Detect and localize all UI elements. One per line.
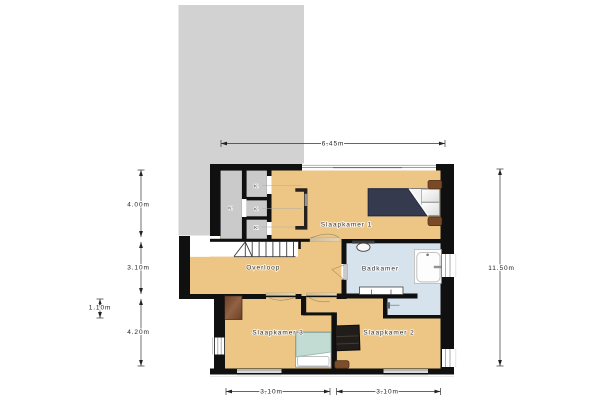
- svg-text:11.50m: 11.50m: [488, 265, 515, 272]
- svg-text:1.10m: 1.10m: [89, 305, 112, 312]
- svg-text:4.00m: 4.00m: [127, 202, 150, 209]
- svg-text:6.45m: 6.45m: [322, 141, 345, 148]
- svg-text:K.: K.: [254, 225, 259, 231]
- svg-text:4.20m: 4.20m: [127, 329, 150, 336]
- svg-text:3.10m: 3.10m: [127, 265, 150, 272]
- svg-text:3.10m: 3.10m: [260, 389, 283, 396]
- svg-text:Slaapkamer 2: Slaapkamer 2: [363, 329, 415, 336]
- svg-text:Badkamer: Badkamer: [362, 265, 399, 272]
- svg-text:Overloop: Overloop: [246, 265, 280, 272]
- svg-text:K.: K.: [254, 183, 259, 189]
- svg-text:Slaapkamer 1: Slaapkamer 1: [321, 222, 373, 229]
- svg-text:K.: K.: [254, 206, 259, 212]
- svg-text:3.10m: 3.10m: [376, 389, 399, 396]
- svg-text:Slaapkamer 3: Slaapkamer 3: [252, 329, 304, 336]
- svg-text:K.: K.: [228, 206, 233, 212]
